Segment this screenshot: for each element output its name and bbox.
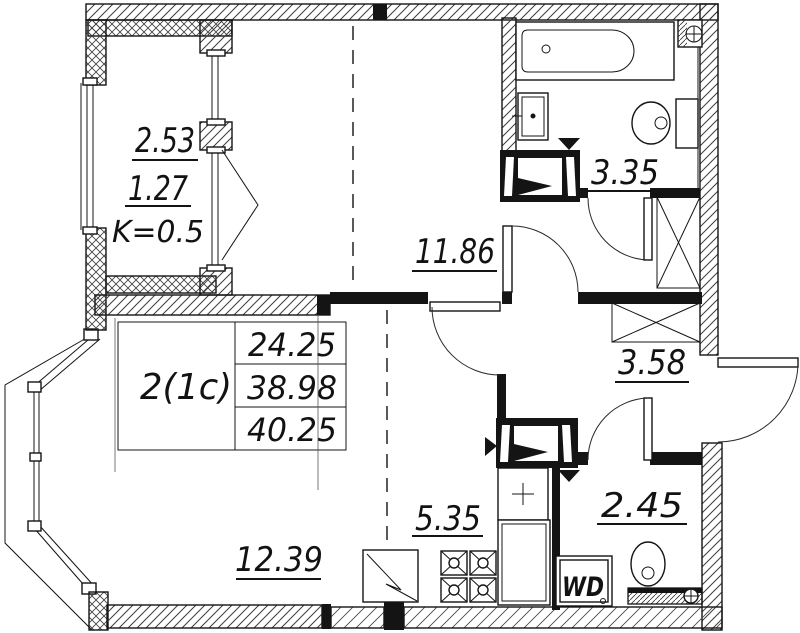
bay-mullion	[28, 521, 41, 531]
bathroom-door	[588, 198, 652, 260]
balcony-area-reduced: 1.27	[128, 169, 188, 209]
living-label: 12.39	[235, 540, 323, 580]
mid-wall-hatched	[95, 295, 330, 315]
window-cap	[207, 50, 225, 56]
entrance-door	[702, 355, 798, 443]
hallway-label: 3.58	[615, 343, 689, 383]
wall-pier	[322, 604, 331, 629]
bedroom-area: 11.86	[415, 232, 495, 272]
wc-shelf	[628, 588, 702, 604]
outer-wall-right-upper	[700, 4, 718, 355]
partition-pier	[200, 122, 232, 150]
window-cap	[83, 78, 97, 85]
area-table: 2(1c) 24.25 38.98 40.25	[118, 322, 346, 450]
wardrobe	[612, 303, 700, 342]
wall-joint	[373, 4, 387, 20]
wc-north-wall	[650, 452, 702, 465]
kitchen-cabinet	[498, 520, 550, 605]
window-cap	[207, 265, 225, 271]
floor-plan: 2(1c) 24.25 38.98 40.25	[0, 0, 800, 633]
bathroom-label: 3.35	[586, 153, 663, 193]
sink	[512, 93, 548, 140]
kitchen-sink	[363, 550, 418, 602]
bedroom-label: 11.86	[412, 232, 497, 272]
mid-wall-black	[330, 292, 428, 304]
door-pier	[502, 292, 512, 304]
wc-door	[588, 398, 652, 460]
fridge	[498, 468, 548, 520]
wc-label: 2.45	[597, 486, 687, 526]
living-area-value: 24.25	[248, 326, 336, 364]
vent-shaft	[678, 20, 702, 47]
outer-wall-bottom-left	[107, 605, 322, 628]
room-labels: 2.53 1.27 K=0.5 11.86 3.35 3.58 5.35 12.…	[112, 121, 689, 580]
floor-plan-canvas: 2(1c) 24.25 38.98 40.25	[0, 0, 800, 633]
partition-pier	[200, 20, 232, 53]
apartment-area-value: 38.98	[247, 369, 337, 407]
unit-type-label: 2(1c)	[140, 367, 232, 408]
bay-mullion	[28, 382, 41, 392]
washer-dryer-label: WD	[562, 572, 604, 603]
vent-arrow-icon	[558, 138, 580, 150]
kitchen-area: 5.35	[415, 499, 481, 539]
balcony-door-swing	[222, 150, 258, 260]
mid-wall-black-east	[578, 292, 702, 304]
outer-wall-top	[86, 4, 718, 20]
living-area: 12.39	[235, 540, 323, 580]
vent-arrow-icon	[485, 437, 497, 456]
stove	[441, 551, 496, 602]
kitchen-label: 5.35	[412, 499, 483, 539]
balcony-label: 2.53 1.27 K=0.5	[112, 121, 204, 250]
outer-wall-bottom-right	[404, 607, 722, 628]
total-area-value: 40.25	[247, 411, 337, 449]
window-cap	[207, 119, 225, 125]
bedroom-door	[503, 226, 578, 292]
window-cap	[83, 227, 97, 234]
wc-area: 2.45	[601, 486, 683, 526]
toilet	[632, 99, 698, 148]
wall-pier	[384, 602, 404, 630]
bay-window	[5, 329, 108, 630]
washer-dryer: WD	[556, 556, 612, 606]
hallway-area: 3.58	[618, 343, 686, 383]
balcony-wall-left-upper	[86, 20, 106, 85]
balcony-coefficient: K=0.5	[112, 215, 204, 250]
kitchen-door	[430, 302, 500, 375]
outer-wall-right-lower	[702, 443, 722, 630]
partition-pier	[200, 268, 232, 295]
walls	[86, 4, 722, 630]
wall-joint	[317, 295, 330, 315]
wardrobe	[657, 197, 700, 288]
bay-corner-pier	[89, 592, 108, 630]
toilet-wc	[631, 542, 665, 586]
bathroom-area: 3.35	[591, 153, 659, 193]
bay-mullion	[30, 453, 41, 461]
kitchen-stub-wall	[497, 374, 506, 420]
vent-arrow-icon	[558, 470, 580, 482]
outer-wall-bottom-mid	[331, 607, 384, 628]
balcony-area-full: 2.53	[135, 121, 195, 161]
bathtub	[516, 22, 674, 80]
